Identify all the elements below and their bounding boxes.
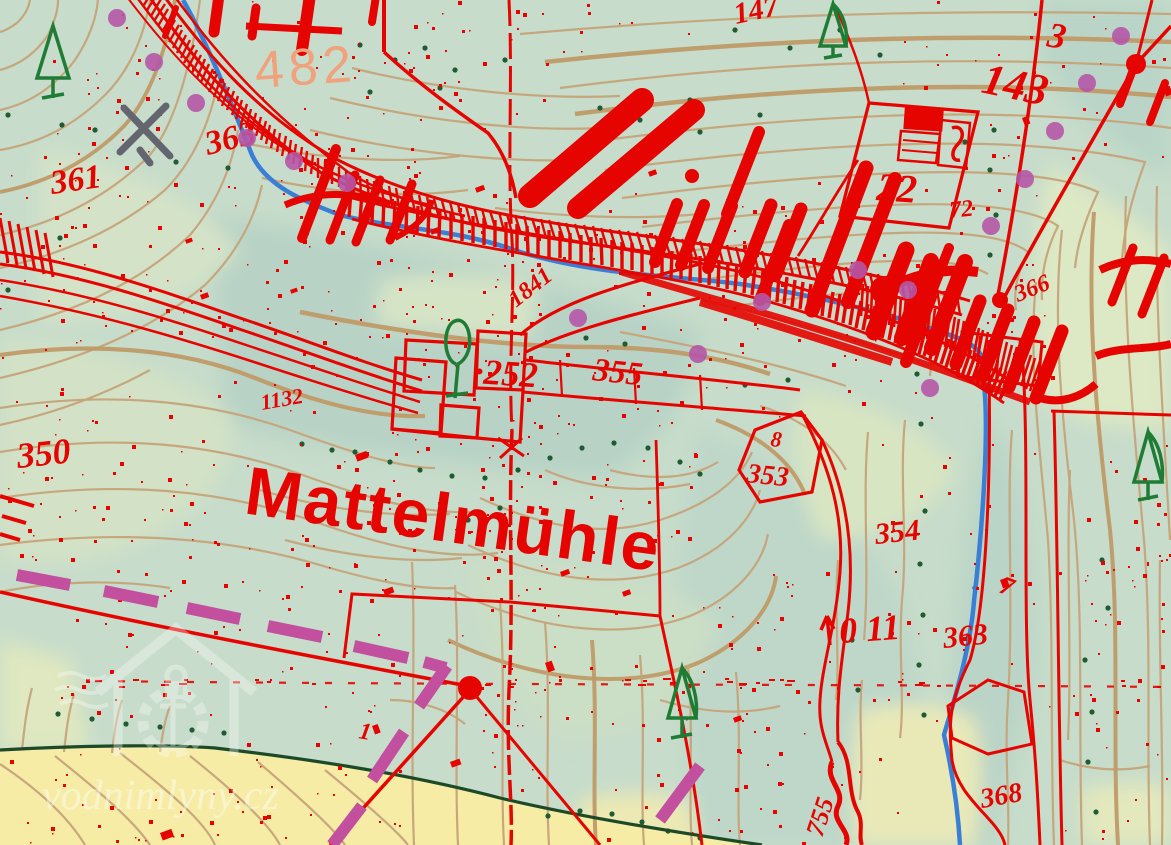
svg-text:350: 350 <box>14 431 73 477</box>
svg-text:353: 353 <box>744 458 790 493</box>
svg-text:354: 354 <box>872 513 921 551</box>
svg-text:482: 482 <box>253 35 359 100</box>
svg-text:0 11: 0 11 <box>838 607 902 651</box>
svg-text:22: 22 <box>874 164 918 212</box>
svg-text:72: 72 <box>948 196 975 224</box>
svg-text:355: 355 <box>590 352 644 393</box>
svg-text:vodnimlyny.cz: vodnimlyny.cz <box>42 773 279 819</box>
